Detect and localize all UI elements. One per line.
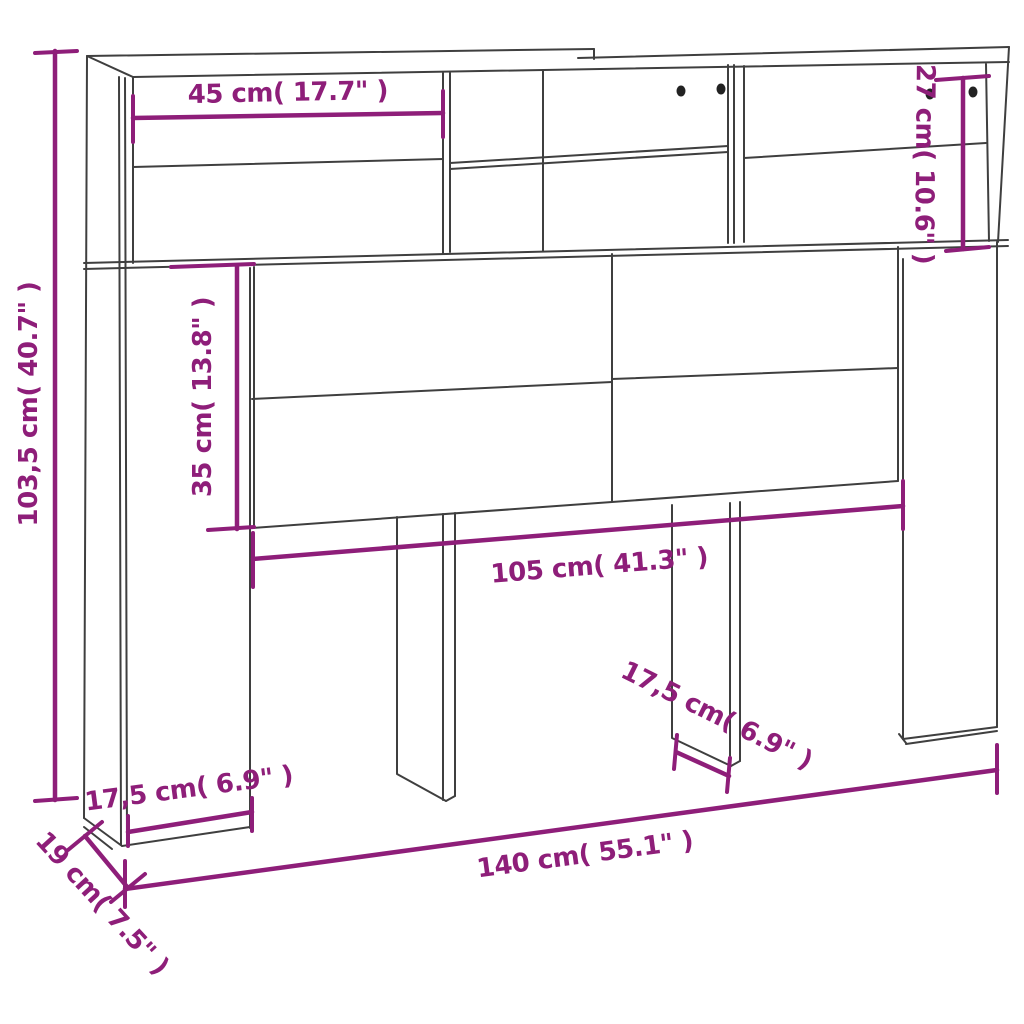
dimension-label-middle-leg-depth: 17,5 cm( 6.9" ) [616,656,817,776]
headboard-dimension-diagram: 45 cm( 17.7" ) 27 cm( 10.6" ) 103,5 cm( … [0,0,1024,1024]
dimension-labels: 45 cm( 17.7" ) 27 cm( 10.6" ) 103,5 cm( … [14,64,940,981]
furniture-outline [84,47,1009,849]
dimension-label-top-right-height: 27 cm( 10.6" ) [908,64,940,265]
dimension-label-overall-height: 103,5 cm( 40.7" ) [14,282,44,527]
dimension-label-overall-depth: 19 cm( 7.5" ) [29,826,175,981]
dimension-label-side-panel-height: 35 cm( 13.8" ) [188,297,218,497]
diagram-canvas: 45 cm( 17.7" ) 27 cm( 10.6" ) 103,5 cm( … [0,0,1024,1024]
dimension-label-top-left-width: 45 cm( 17.7" ) [187,76,388,110]
dimension-label-left-panel-depth: 17,5 cm( 6.9" ) [83,761,295,818]
dimension-label-inner-width: 105 cm( 41.3" ) [490,542,710,589]
